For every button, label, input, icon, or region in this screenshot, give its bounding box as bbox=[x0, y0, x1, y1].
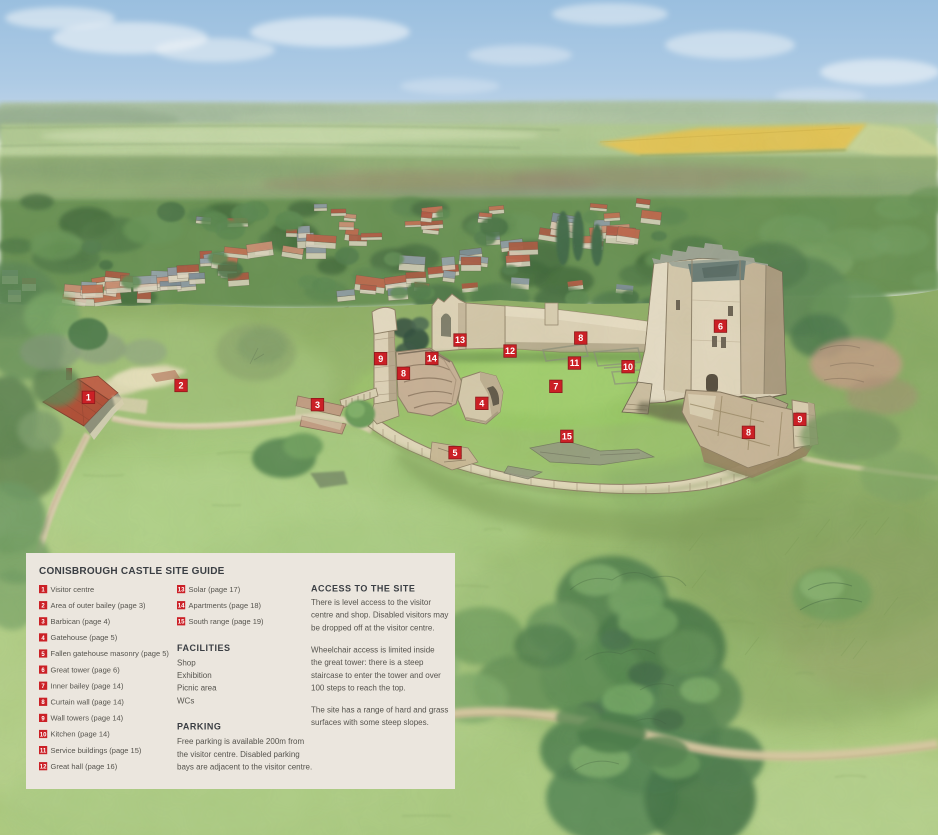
svg-text:2: 2 bbox=[178, 381, 183, 391]
svg-text:ACCESS TO THE SITE: ACCESS TO THE SITE bbox=[311, 584, 415, 594]
svg-text:Wall towers (page 14): Wall towers (page 14) bbox=[51, 714, 124, 723]
svg-text:1: 1 bbox=[86, 393, 91, 403]
svg-text:15: 15 bbox=[562, 432, 572, 442]
svg-text:bays are adjacent to the visit: bays are adjacent to the visitor centre. bbox=[177, 763, 312, 772]
svg-text:6: 6 bbox=[718, 321, 723, 331]
svg-text:8: 8 bbox=[401, 369, 406, 379]
svg-text:Visitor centre: Visitor centre bbox=[51, 585, 95, 594]
svg-text:centre and shop. Disabled visi: centre and shop. Disabled visitors may bbox=[311, 611, 448, 620]
svg-text:12: 12 bbox=[40, 765, 47, 771]
svg-text:11: 11 bbox=[40, 749, 47, 755]
svg-text:100 steps to reach the top.: 100 steps to reach the top. bbox=[311, 684, 406, 693]
svg-text:15: 15 bbox=[178, 620, 185, 626]
svg-text:14: 14 bbox=[178, 604, 185, 610]
svg-text:Exhibition: Exhibition bbox=[177, 671, 212, 680]
svg-text:Great tower (page 6): Great tower (page 6) bbox=[51, 665, 121, 674]
svg-text:There is level access to the v: There is level access to the visitor bbox=[311, 598, 431, 607]
svg-text:10: 10 bbox=[40, 732, 47, 738]
svg-text:Kitchen (page 14): Kitchen (page 14) bbox=[51, 730, 111, 739]
svg-text:surfaces with some steep slope: surfaces with some steep slopes. bbox=[311, 718, 429, 727]
svg-text:WCs: WCs bbox=[177, 696, 194, 705]
svg-text:Service buildings (page 15): Service buildings (page 15) bbox=[51, 746, 142, 755]
svg-text:5: 5 bbox=[452, 448, 457, 458]
svg-text:Free parking is available 200m: Free parking is available 200m from bbox=[177, 737, 305, 746]
svg-text:3: 3 bbox=[315, 400, 320, 410]
svg-text:Gatehouse (page 5): Gatehouse (page 5) bbox=[51, 633, 118, 642]
svg-text:13: 13 bbox=[178, 588, 185, 594]
svg-text:Shop: Shop bbox=[177, 658, 196, 667]
svg-text:9: 9 bbox=[378, 354, 383, 364]
svg-text:FACILITIES: FACILITIES bbox=[177, 643, 231, 653]
svg-text:11: 11 bbox=[570, 358, 580, 368]
svg-text:Apartments (page 18): Apartments (page 18) bbox=[189, 601, 262, 610]
svg-text:Great hall (page 16): Great hall (page 16) bbox=[51, 762, 118, 771]
svg-text:the visitor centre. Disabled p: the visitor centre. Disabled parking bbox=[177, 750, 300, 759]
svg-text:The site has a range of hard a: The site has a range of hard and grass bbox=[311, 706, 448, 715]
svg-text:Inner bailey (page 14): Inner bailey (page 14) bbox=[51, 681, 124, 690]
svg-text:CONISBROUGH CASTLE SITE GUIDE: CONISBROUGH CASTLE SITE GUIDE bbox=[39, 566, 225, 577]
svg-text:14: 14 bbox=[427, 354, 437, 364]
svg-text:Picnic area: Picnic area bbox=[177, 684, 217, 693]
svg-text:13: 13 bbox=[455, 335, 465, 345]
svg-text:8: 8 bbox=[746, 428, 751, 438]
svg-text:staircase to enter the tower a: staircase to enter the tower and over bbox=[311, 671, 441, 680]
svg-text:Wheelchair access is limited i: Wheelchair access is limited inside bbox=[311, 645, 435, 654]
svg-text:10: 10 bbox=[623, 362, 633, 372]
svg-text:12: 12 bbox=[505, 346, 515, 356]
svg-text:Solar (page 17): Solar (page 17) bbox=[189, 585, 241, 594]
svg-text:South range (page 19): South range (page 19) bbox=[189, 617, 265, 626]
svg-text:4: 4 bbox=[479, 399, 484, 409]
svg-text:Barbican (page 4): Barbican (page 4) bbox=[51, 617, 111, 626]
svg-text:7: 7 bbox=[553, 382, 558, 392]
svg-text:the great tower: there is a st: the great tower: there is a steep bbox=[311, 658, 424, 667]
svg-text:8: 8 bbox=[578, 333, 583, 343]
svg-text:Area of outer bailey (page 3): Area of outer bailey (page 3) bbox=[51, 601, 147, 610]
svg-text:Fallen gatehouse masonry (page: Fallen gatehouse masonry (page 5) bbox=[51, 649, 170, 658]
svg-text:Curtain wall (page 14): Curtain wall (page 14) bbox=[51, 698, 125, 707]
svg-text:9: 9 bbox=[797, 415, 802, 425]
svg-text:be dropped off at the visitor: be dropped off at the visitor centre. bbox=[311, 623, 434, 632]
svg-text:PARKING: PARKING bbox=[177, 722, 221, 732]
